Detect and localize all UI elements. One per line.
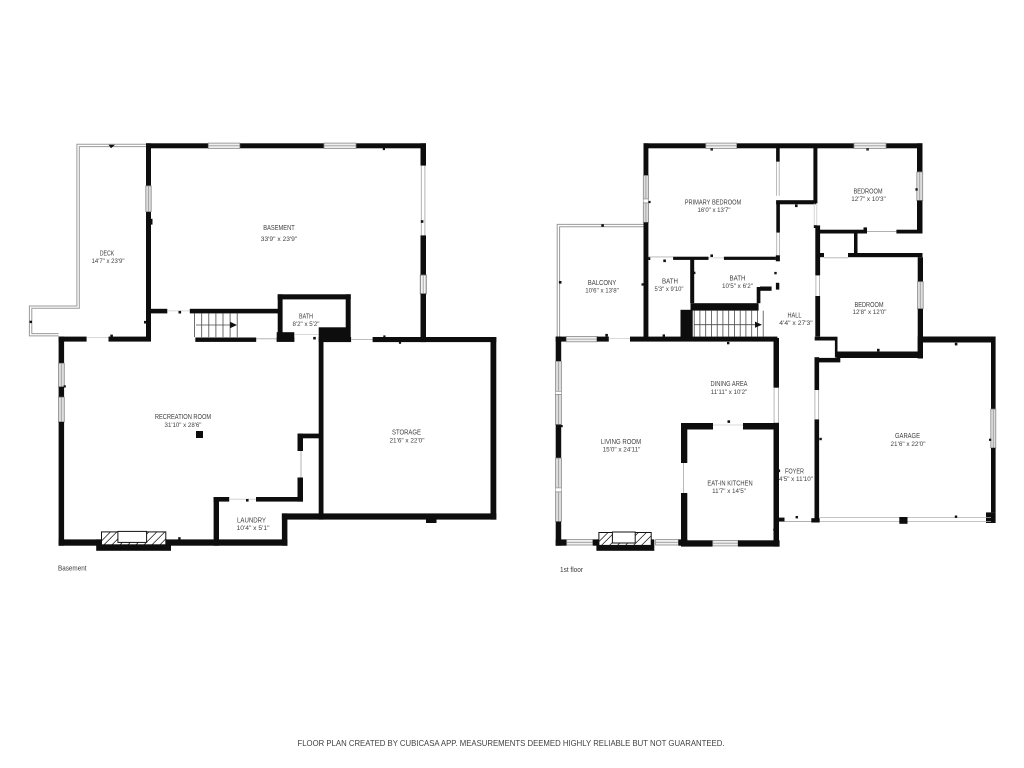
svg-text:21'6" x 22'0": 21'6" x 22'0"	[891, 441, 927, 448]
svg-text:12'7" x 10'3": 12'7" x 10'3"	[851, 196, 886, 203]
svg-text:FOYER: FOYER	[785, 466, 804, 475]
svg-text:11'7" x 14'5": 11'7" x 14'5"	[712, 488, 746, 495]
svg-text:BEDROOM: BEDROOM	[855, 300, 884, 309]
svg-text:15'0" x 24'11": 15'0" x 24'11"	[603, 446, 641, 453]
svg-text:33'9" x 23'9": 33'9" x 23'9"	[261, 236, 298, 243]
svg-text:8'2" x 5'2": 8'2" x 5'2"	[293, 321, 321, 328]
svg-text:BEDROOM: BEDROOM	[854, 187, 883, 196]
svg-text:12'8" x 12'0": 12'8" x 12'0"	[853, 309, 888, 316]
svg-text:DECK: DECK	[100, 248, 115, 257]
svg-text:STORAGE: STORAGE	[392, 428, 421, 437]
svg-text:BALCONY: BALCONY	[588, 278, 617, 287]
svg-text:BATH: BATH	[730, 273, 746, 282]
svg-text:BATH: BATH	[662, 276, 678, 285]
svg-text:BASEMENT: BASEMENT	[263, 223, 295, 232]
svg-text:Basement: Basement	[58, 564, 87, 573]
svg-text:4'5" x 11'10": 4'5" x 11'10"	[779, 476, 814, 483]
svg-text:1st floor: 1st floor	[560, 565, 583, 574]
svg-text:10'6" x 13'8": 10'6" x 13'8"	[585, 288, 619, 295]
svg-text:21'6" x 22'0": 21'6" x 22'0"	[390, 437, 426, 444]
svg-text:BATH: BATH	[299, 311, 313, 320]
svg-text:10'4" x 5'1": 10'4" x 5'1"	[237, 525, 271, 532]
svg-text:LIVING ROOM: LIVING ROOM	[601, 437, 641, 446]
svg-text:LAUNDRY: LAUNDRY	[237, 516, 266, 525]
svg-text:HALL: HALL	[788, 310, 802, 319]
svg-text:DINING AREA: DINING AREA	[711, 379, 749, 388]
svg-text:16'0" x 13'7": 16'0" x 13'7"	[698, 207, 732, 214]
svg-text:31'10" x 28'6": 31'10" x 28'6"	[165, 422, 202, 429]
svg-text:5'3" x 9'10": 5'3" x 9'10"	[655, 286, 685, 293]
svg-text:14'7" x 23'9": 14'7" x 23'9"	[92, 258, 126, 265]
svg-text:4'4" x 27'3": 4'4" x 27'3"	[779, 320, 813, 327]
svg-text:PRIMARY BEDROOM: PRIMARY BEDROOM	[685, 197, 742, 206]
svg-text:FLOOR PLAN CREATED BY CUBICASA: FLOOR PLAN CREATED BY CUBICASA APP. MEAS…	[298, 738, 725, 748]
svg-text:11'11" x 10'2": 11'11" x 10'2"	[711, 389, 748, 396]
svg-text:RECREATION ROOM: RECREATION ROOM	[155, 412, 211, 421]
svg-text:10'5" x 6'2": 10'5" x 6'2"	[722, 283, 754, 290]
svg-text:EAT-IN KITCHEN: EAT-IN KITCHEN	[707, 479, 752, 488]
svg-text:GARAGE: GARAGE	[895, 431, 920, 440]
